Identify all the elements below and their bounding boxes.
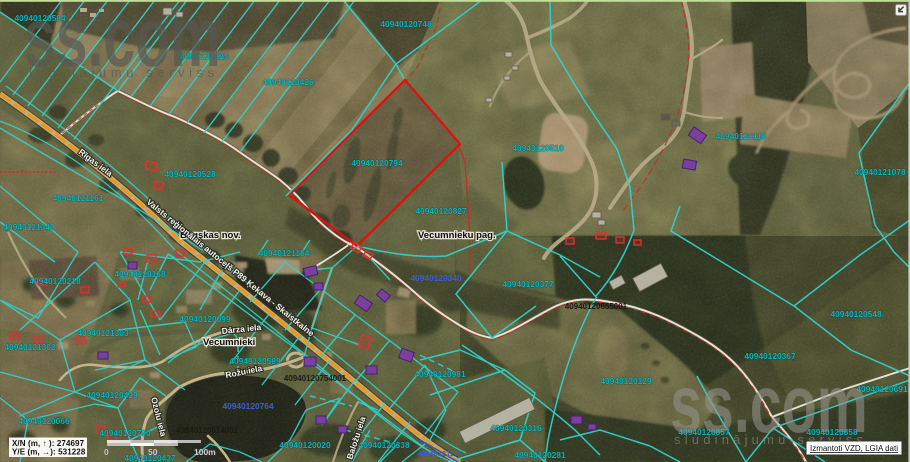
svg-text:40940120316: 40940120316 — [490, 423, 542, 433]
svg-text:40940120429: 40940120429 — [86, 390, 138, 400]
svg-text:40940120281: 40940120281 — [514, 450, 566, 460]
svg-text:0: 0 — [104, 447, 109, 457]
svg-text:40940120129: 40940120129 — [600, 376, 652, 386]
svg-text:40940120118: 40940120118 — [716, 131, 767, 141]
svg-text:40940120981: 40940120981 — [414, 369, 466, 379]
svg-text:40940120790: 40940120790 — [99, 428, 151, 438]
svg-text:40940121303: 40940121303 — [77, 328, 129, 338]
svg-text:40940120066: 40940120066 — [18, 416, 70, 426]
svg-text:sludinājumu serviss: sludinājumu serviss — [18, 65, 219, 80]
svg-text:40940120614001: 40940120614001 — [176, 426, 239, 435]
svg-text:50: 50 — [148, 447, 158, 457]
svg-text:40940120528: 40940120528 — [164, 169, 216, 179]
svg-text:40940120827: 40940120827 — [415, 206, 467, 216]
svg-text:40940120426: 40940120426 — [262, 77, 314, 87]
svg-text:40940120020: 40940120020 — [279, 440, 331, 450]
svg-text:40940120764: 40940120764 — [222, 401, 274, 411]
svg-text:40940120548: 40940120548 — [830, 309, 882, 319]
svg-text:40940121164: 40940121164 — [259, 248, 310, 258]
svg-text:Vecumnieki: Vecumnieki — [203, 337, 255, 348]
svg-text:40940121161: 40940121161 — [53, 193, 104, 203]
svg-text:40940120099: 40940120099 — [179, 314, 231, 324]
svg-text:40940120794: 40940120794 — [351, 158, 403, 168]
svg-text:40940121285: 40940121285 — [417, 449, 462, 458]
svg-text:40940120340: 40940120340 — [410, 273, 462, 283]
svg-text:40940120377: 40940120377 — [502, 279, 554, 289]
svg-text:40940120168: 40940120168 — [114, 269, 166, 279]
svg-text:40940120510: 40940120510 — [512, 143, 564, 153]
svg-text:Vecumnieku pag.: Vecumnieku pag. — [418, 230, 496, 241]
svg-text:100m: 100m — [194, 447, 216, 457]
svg-text:X/N (m, ↑ ): 274697: X/N (m, ↑ ): 274697 — [12, 439, 85, 448]
svg-text:40940120748: 40940120748 — [380, 19, 432, 29]
svg-text:Y/E (m, →): 531228: Y/E (m, →): 531228 — [12, 448, 86, 457]
svg-text:40940120218: 40940120218 — [29, 276, 81, 286]
svg-text:40940120754001: 40940120754001 — [284, 374, 347, 383]
svg-text:40940121340: 40940121340 — [3, 222, 55, 232]
svg-text:40940120338: 40940120338 — [358, 440, 410, 450]
svg-text:40940120655001: 40940120655001 — [565, 302, 628, 311]
svg-text:Izmantoti VZD, LGIA dati: Izmantoti VZD, LGIA dati — [810, 444, 898, 453]
svg-text:40940121078: 40940121078 — [854, 167, 906, 177]
svg-text:40940121302: 40940121302 — [4, 342, 56, 352]
